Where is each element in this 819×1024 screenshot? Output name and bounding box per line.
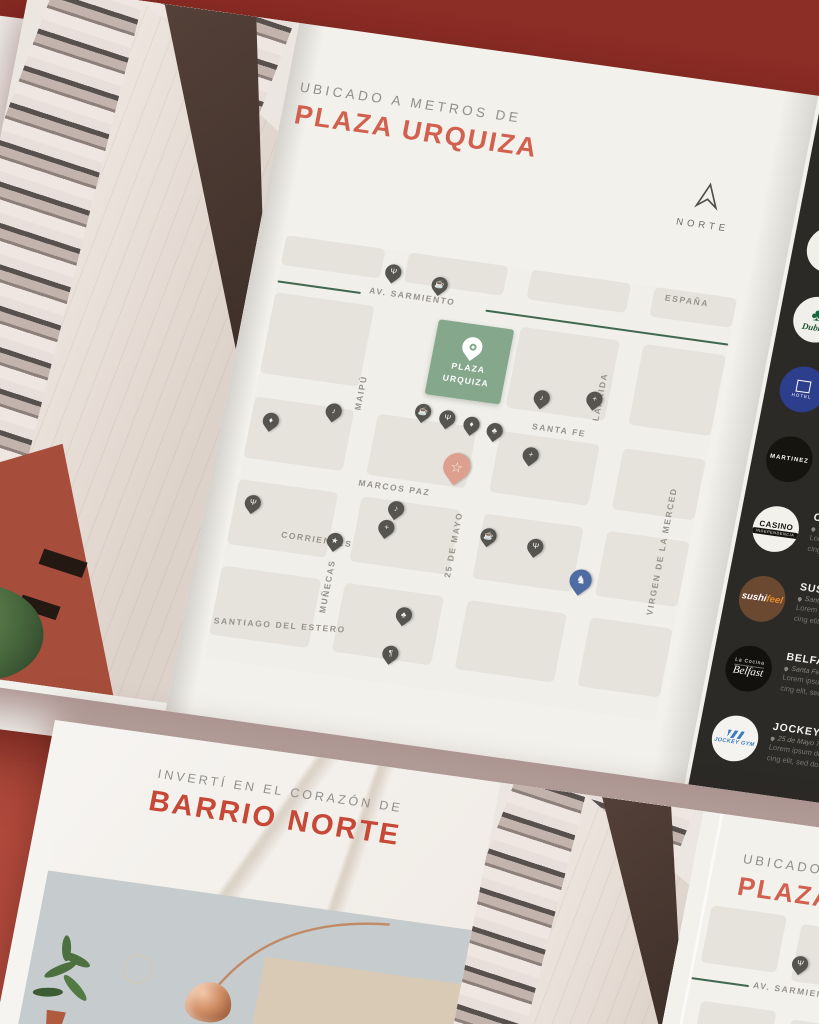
- poi-logo: CASINOINDEPENDENCIA: [749, 503, 803, 555]
- poi-text: BELFASTSanta FeLorem ipsum dolor sicing …: [779, 651, 819, 715]
- pin-glyph: ♞: [575, 574, 587, 586]
- plaza-pin-icon: [458, 333, 486, 361]
- pin-glyph: ♦: [469, 421, 475, 429]
- plant-leaf: [33, 988, 64, 997]
- logo-text: HOTEL: [791, 393, 812, 400]
- plant-pot: [41, 1009, 67, 1024]
- avenue-highlight-line: [277, 280, 361, 294]
- pin-glyph: ♣: [491, 427, 498, 436]
- city-block: [628, 344, 726, 436]
- pin-glyph: ♦: [268, 417, 274, 425]
- north-arrow-icon: [690, 180, 725, 214]
- pin-glyph: ★: [331, 536, 340, 545]
- pin-glyph: ♪: [393, 505, 398, 513]
- city-block: [781, 1019, 819, 1024]
- city-block: [455, 600, 567, 683]
- poi-logo: JOCKEY GYM: [708, 713, 762, 765]
- city-block: [404, 252, 509, 295]
- compass: NORTE: [667, 177, 746, 236]
- poi-desc: cing elit, sed do eiu: [793, 614, 819, 643]
- scene: UBICADO A METROS DE PLAZA URQUIZA NORTE …: [0, 0, 819, 1024]
- plaza-label: PLAZA URQUIZA: [436, 358, 498, 391]
- poi-entry: MARTINEZLorem ipsum dolcing elit, sed: [762, 433, 819, 505]
- city-block: [281, 235, 386, 278]
- map-page-header: UBICADO A METROS DE PLAZA URQUIZA: [292, 80, 629, 176]
- neighborhood-map: ESPAÑAAV. SARMIENTOSANTA FEMARCOS PAZCOR…: [204, 235, 737, 721]
- poi-entry: ♣Dublín: [789, 294, 819, 366]
- logo-text: Belfast: [732, 664, 764, 680]
- plaza-urquiza-block: PLAZA URQUIZA: [425, 319, 515, 404]
- city-block: [472, 513, 584, 592]
- brochure-top-spread: UBICADO A METROS DE PLAZA URQUIZA NORTE …: [0, 0, 819, 812]
- logo-text: MARTINEZ: [769, 453, 809, 465]
- city-block: [691, 1001, 776, 1024]
- compass-label: NORTE: [667, 215, 738, 236]
- pin-glyph: ♣: [401, 611, 408, 620]
- crest-icon: [795, 379, 811, 393]
- plant-leaf: [61, 972, 90, 1003]
- location-pin-icon: [783, 666, 789, 672]
- poi-entry: A: [803, 224, 819, 296]
- city-block: [227, 479, 339, 558]
- poi-desc: cing elit, sed do eiu: [779, 683, 819, 712]
- pin-glyph: +: [591, 395, 597, 404]
- city-block: [577, 617, 673, 697]
- poi-logo: A: [803, 224, 819, 276]
- poi-entry: CASINOINDEPENDENCIACASINOSanta FeLorem i…: [749, 503, 819, 575]
- avenue-highlight-line: [691, 977, 749, 987]
- poi-desc: cing elit, sed do eiu: [807, 544, 819, 573]
- logo-text: sushifeel: [741, 591, 784, 607]
- logo-text: Dublín: [801, 322, 819, 335]
- poi-text: JOCKEY GYM25 de Mayo 7Lorem ipsum dolor …: [765, 721, 819, 785]
- logo-text: JOCKEY GYM: [713, 738, 754, 749]
- city-block: [526, 270, 631, 313]
- poi-logo: MARTINEZ: [762, 433, 816, 485]
- pin-glyph: Ψ: [443, 414, 451, 423]
- pin-glyph: ¶: [387, 649, 393, 657]
- poi-pin: Ψ: [382, 261, 404, 283]
- pin-glyph: ♪: [331, 407, 336, 415]
- city-block: [260, 292, 375, 387]
- poi-text: SUSHI FEELSanta FeLorem ipsum dolor sici…: [792, 581, 819, 645]
- poi-logo: HOTEL: [776, 364, 819, 416]
- poi-entry: sushifeelSUSHI FEELSanta FeLorem ipsum d…: [735, 573, 819, 645]
- pin-glyph: Ψ: [531, 542, 539, 551]
- poi-entry: La CocinaBelfastBELFASTSanta FeLorem ips…: [721, 643, 819, 715]
- pin-glyph: ☕: [434, 280, 445, 289]
- poi-entry: HOTEL: [776, 364, 819, 436]
- location-pin-icon: [811, 526, 817, 532]
- poi-text: CASINOSanta FeLorem ipsum dolor sicing e…: [806, 511, 819, 575]
- pin-glyph: ☕: [483, 532, 494, 541]
- poi-entry: JOCKEY GYMJOCKEY GYM25 de Mayo 7Lorem ip…: [708, 713, 819, 785]
- city-block: [595, 531, 690, 607]
- pin-glyph: Ψ: [249, 499, 257, 508]
- poi-logo: ♣Dublín: [789, 294, 819, 346]
- city-block: [649, 287, 737, 328]
- city-block: [209, 565, 321, 648]
- pin-glyph: Ψ: [796, 960, 804, 969]
- pin-glyph: ♪: [539, 394, 544, 402]
- pin-glyph: ☆: [449, 459, 464, 475]
- street-label: MUÑECAS: [317, 559, 337, 614]
- location-pin-icon: [770, 735, 776, 741]
- city-block: [612, 448, 706, 520]
- pin-glyph: +: [383, 524, 389, 533]
- pin-glyph: Ψ: [389, 268, 397, 277]
- city-block: [489, 431, 600, 506]
- pin-glyph: +: [528, 451, 534, 460]
- poi-logo: La CocinaBelfast: [721, 643, 775, 695]
- pin-glyph: ☕: [417, 407, 428, 416]
- poi-logo: sushifeel: [735, 573, 789, 625]
- location-pin-icon: [797, 596, 803, 602]
- city-block: [701, 905, 787, 973]
- wall-clock: [120, 952, 155, 986]
